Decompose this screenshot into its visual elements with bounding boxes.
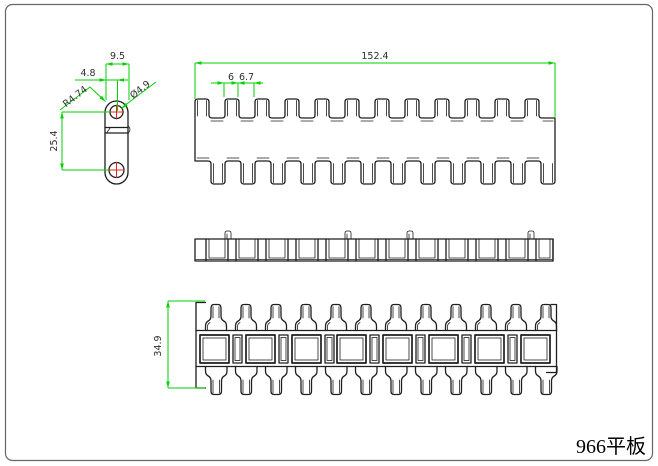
drawing-title: 966平板 (576, 435, 646, 458)
dim-label-overall-length: 152.4 (361, 51, 388, 62)
dim-label-hole-offset: 4.8 (80, 68, 95, 79)
dim-label-radius: R4.74 (61, 84, 90, 110)
dimension-lines (60, 61, 555, 388)
plate-top-view (195, 99, 555, 184)
link-side-view (105, 101, 130, 184)
cad-canvas: 9.5 4.8 R4.74 Ø4.9 25.4 152.4 6 6.7 34.9… (0, 0, 658, 466)
dim-label-tooth-gap: 6.7 (239, 72, 254, 83)
dim-label-hole-spacing: 25.4 (49, 130, 60, 151)
dim-label-hole-diameter: Ø4.9 (128, 79, 153, 102)
plate-edge-view (195, 231, 553, 261)
plate-bottom-view (196, 303, 557, 395)
dim-label-tooth-width: 6 (228, 72, 234, 83)
dim-label-link-width: 9.5 (110, 51, 125, 62)
cad-drawing-sheet: 9.5 4.8 R4.74 Ø4.9 25.4 152.4 6 6.7 34.9… (0, 0, 658, 466)
dim-label-overall-width: 34.9 (153, 335, 164, 356)
